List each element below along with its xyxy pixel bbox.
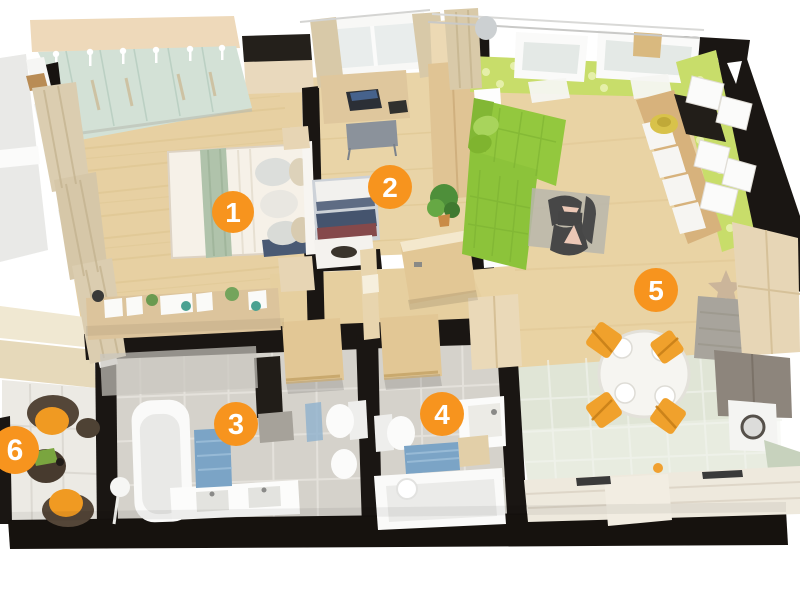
svg-text:1: 1 xyxy=(225,197,241,228)
svg-text:5: 5 xyxy=(648,275,664,306)
svg-text:3: 3 xyxy=(228,409,244,441)
svg-text:2: 2 xyxy=(382,172,398,203)
svg-text:4: 4 xyxy=(434,399,450,430)
svg-text:6: 6 xyxy=(7,434,24,467)
